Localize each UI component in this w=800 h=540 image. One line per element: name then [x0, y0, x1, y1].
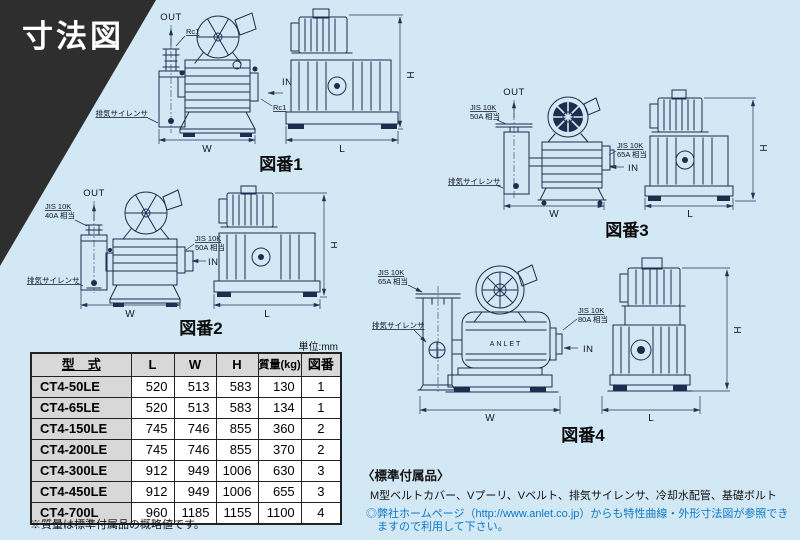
fig-cell: 1	[301, 377, 341, 398]
fig2-in-label: IN	[208, 257, 219, 268]
fig-cell: 1	[301, 398, 341, 419]
model-cell: CT4-150LE	[31, 419, 131, 440]
fig3-in-port-l1: JIS 10K	[617, 141, 643, 150]
fig4-front-view: JIS 10K 65A 相当 排気サイレンサ ANLET	[372, 265, 608, 422]
table-row: CT4-200LE 745 746 855 370 2	[31, 440, 341, 461]
fig3-in-port-l2: 65A 相当	[617, 149, 647, 159]
l-cell: 520	[131, 377, 174, 398]
fig1-side-view: H L	[286, 9, 415, 155]
header-h: H	[216, 353, 258, 377]
mass-cell: 370	[258, 440, 301, 461]
table-row: CT4-450LE 912 949 1006 655 3	[31, 482, 341, 503]
fig2-silencer-label: 排気サイレンサ	[27, 275, 80, 285]
l-cell: 912	[131, 482, 174, 503]
fig2-side-view: H L	[214, 186, 337, 320]
table-row: CT4-300LE 912 949 1006 630 3	[31, 461, 341, 482]
table-header-row: 型 式 L W H 質量(kg) 図番	[31, 353, 341, 377]
h-cell: 583	[216, 377, 258, 398]
header-w: W	[174, 353, 216, 377]
header-fig: 図番	[301, 353, 341, 377]
h-cell: 1006	[216, 461, 258, 482]
accessories-body: M型ベルトカバー、Vプーリ、Vベルト、排気サイレンサ、冷却水配管、基礎ボルト	[370, 487, 792, 503]
header-model: 型 式	[31, 353, 131, 377]
notes-block: 〈標準付属品〉 M型ベルトカバー、Vプーリ、Vベルト、排気サイレンサ、冷却水配管…	[362, 465, 792, 534]
fig4-in-label: IN	[583, 344, 594, 355]
figure-4-drawing: JIS 10K 65A 相当 排気サイレンサ ANLET	[370, 250, 762, 422]
fig1-in-port-label: Rc1	[273, 103, 286, 112]
h-cell: 855	[216, 440, 258, 461]
h-cell: 1006	[216, 482, 258, 503]
fig1-dim-w: W	[202, 144, 212, 155]
fig2-in-port-l1: JIS 10K	[195, 234, 221, 243]
model-cell: CT4-50LE	[31, 377, 131, 398]
fig4-side-view: H L	[602, 258, 742, 422]
fig3-front-view: OUT JIS 10K 50A 相当 排気サイレンサ	[448, 87, 647, 220]
h-cell: 855	[216, 419, 258, 440]
h-cell: 1155	[216, 503, 258, 525]
fig4-in-port-l1: JIS 10K	[578, 306, 604, 315]
fig3-out-port-l2: 50A 相当	[470, 111, 500, 121]
fig4-out-port-l1: JIS 10K	[378, 268, 404, 277]
fig2-out-port-l2: 40A 相当	[45, 210, 75, 220]
figure-3-caption: 図番3	[587, 216, 667, 241]
fig2-dim-h: H	[328, 241, 337, 248]
l-cell: 912	[131, 461, 174, 482]
table-row: CT4-65LE 520 513 583 134 1	[31, 398, 341, 419]
homepage-note-line2: ますので利用して下さい。	[377, 521, 509, 533]
fig3-silencer-label: 排気サイレンサ	[448, 176, 501, 186]
w-cell: 513	[174, 377, 216, 398]
fig1-silencer-label: 排気サイレンサ	[96, 108, 149, 118]
table-row: CT4-50LE 520 513 583 130 1	[31, 377, 341, 398]
fig3-dim-w: W	[549, 209, 559, 220]
table-row: CT4-150LE 745 746 855 360 2	[31, 419, 341, 440]
fig1-front-view: OUT Rc1 排気サイレンサ	[96, 12, 293, 155]
fig3-side-view: H L	[645, 90, 768, 220]
fig3-out-port-l1: JIS 10K	[470, 103, 496, 112]
l-cell: 520	[131, 398, 174, 419]
figure-1-caption: 図番1	[241, 150, 321, 175]
mass-cell: 1100	[258, 503, 301, 525]
header-l: L	[131, 353, 174, 377]
fig2-dim-l: L	[264, 309, 270, 320]
fig4-dim-w: W	[485, 413, 495, 422]
fig3-dim-h: H	[757, 144, 768, 151]
fig1-dim-h: H	[404, 71, 415, 78]
fig2-front-view: OUT JIS 10K 40A 相当 排気サイレンサ	[27, 188, 225, 320]
fig4-in-port-l2: 80A 相当	[578, 314, 608, 324]
l-cell: 745	[131, 440, 174, 461]
dimension-table: 型 式 L W H 質量(kg) 図番 CT4-50LE 520 513 583…	[30, 352, 342, 525]
fig4-silencer-label: 排気サイレンサ	[372, 320, 425, 330]
w-cell: 949	[174, 482, 216, 503]
model-cell: CT4-300LE	[31, 461, 131, 482]
fig4-dim-h: H	[731, 326, 742, 333]
mass-cell: 130	[258, 377, 301, 398]
fig2-out-port-l1: JIS 10K	[45, 202, 71, 211]
mass-cell: 360	[258, 419, 301, 440]
catalog-page: 寸法図 OUT Rc1 排気サイレンサ	[0, 0, 800, 540]
w-cell: 513	[174, 398, 216, 419]
fig-cell: 4	[301, 503, 341, 525]
fig4-out-port-l2: 65A 相当	[378, 276, 408, 286]
model-cell: CT4-65LE	[31, 398, 131, 419]
mass-cell: 655	[258, 482, 301, 503]
fig2-dim-w: W	[125, 309, 135, 320]
fig1-out-label: OUT	[160, 12, 182, 23]
w-cell: 746	[174, 440, 216, 461]
l-cell: 745	[131, 419, 174, 440]
w-cell: 746	[174, 419, 216, 440]
fig3-dim-l: L	[687, 209, 693, 220]
model-cell: CT4-450LE	[31, 482, 131, 503]
mass-cell: 134	[258, 398, 301, 419]
homepage-note: ◎弊社ホームページ（http://www.anlet.co.jp）からも特性曲線…	[366, 508, 792, 534]
figure-2-caption: 図番2	[161, 314, 241, 339]
fig-cell: 2	[301, 419, 341, 440]
fig1-dim-l: L	[339, 144, 345, 155]
fig4-brand-label: ANLET	[490, 341, 523, 348]
unit-label: 単位:mm	[238, 338, 338, 353]
fig3-out-label: OUT	[503, 87, 525, 98]
homepage-note-line1: ◎弊社ホームページ（http://www.anlet.co.jp）からも特性曲線…	[366, 508, 788, 520]
mass-note: ※質量は標準付属品の概略値です。	[30, 516, 205, 532]
figure-3-drawing: OUT JIS 10K 50A 相当 排気サイレンサ	[440, 60, 785, 220]
h-cell: 583	[216, 398, 258, 419]
figure-2-drawing: OUT JIS 10K 40A 相当 排気サイレンサ	[25, 183, 337, 333]
w-cell: 949	[174, 461, 216, 482]
mass-cell: 630	[258, 461, 301, 482]
fig2-out-label: OUT	[83, 188, 105, 199]
model-cell: CT4-200LE	[31, 440, 131, 461]
accessories-title: 〈標準付属品〉	[362, 465, 792, 484]
fig-cell: 3	[301, 482, 341, 503]
fig4-dim-l: L	[648, 413, 654, 422]
figure-4-caption: 図番4	[543, 421, 623, 446]
header-mass: 質量(kg)	[258, 353, 301, 377]
fig-cell: 3	[301, 461, 341, 482]
fig-cell: 2	[301, 440, 341, 461]
fig2-in-port-l2: 50A 相当	[195, 242, 225, 252]
fig3-in-label: IN	[628, 163, 639, 174]
